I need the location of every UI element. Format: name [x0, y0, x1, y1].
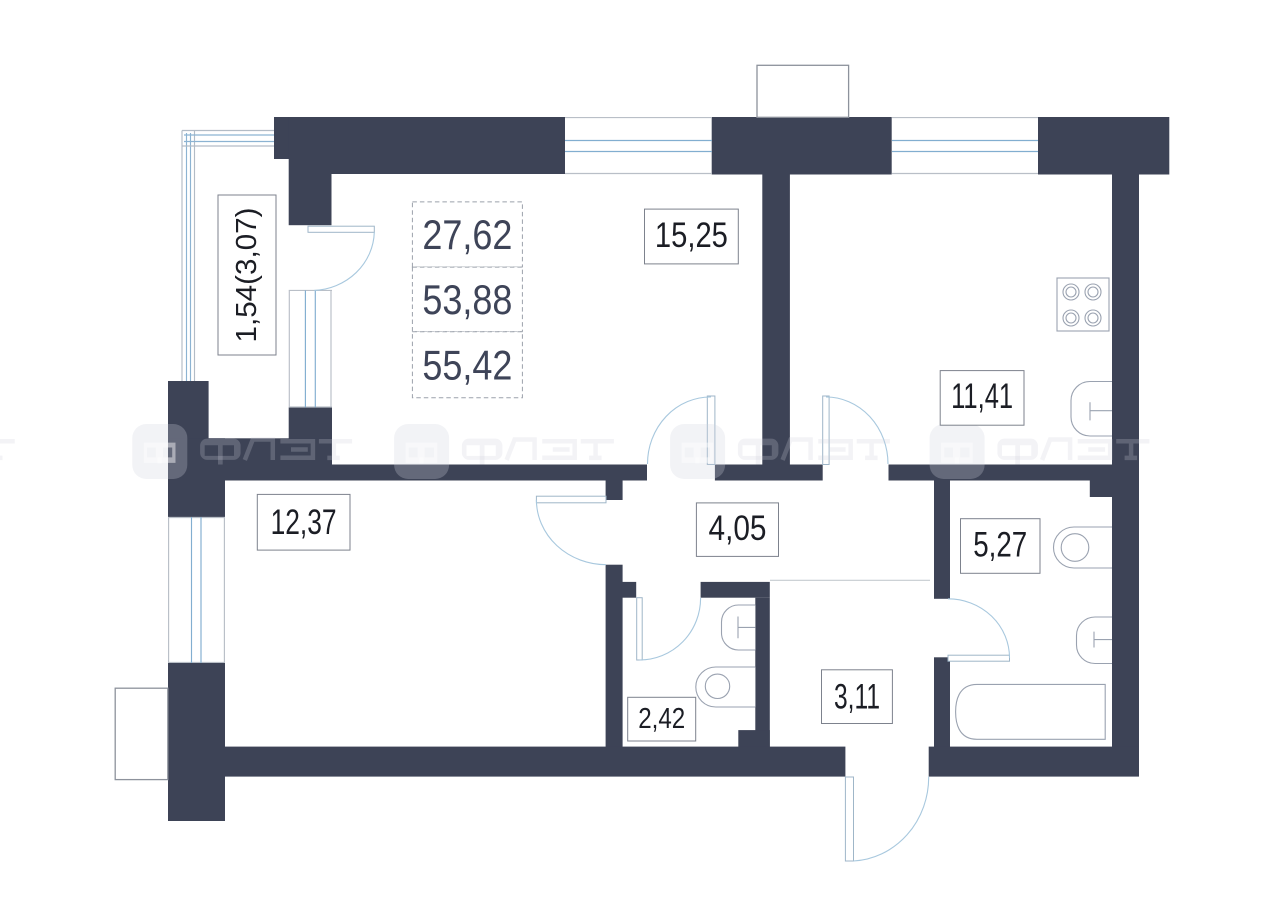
svg-text:15,25: 15,25	[655, 216, 728, 255]
svg-text:1,54(3,07): 1,54(3,07)	[231, 208, 263, 343]
svg-text:2,42: 2,42	[638, 703, 685, 735]
svg-text:12,37: 12,37	[271, 503, 337, 542]
svg-text:5,27: 5,27	[973, 526, 1027, 565]
svg-text:3,11: 3,11	[834, 678, 880, 717]
svg-text:55,42: 55,42	[422, 342, 512, 389]
svg-text:4,05: 4,05	[709, 509, 767, 548]
svg-text:27,62: 27,62	[422, 211, 512, 258]
svg-text:11,41: 11,41	[951, 377, 1013, 416]
svg-text:53,88: 53,88	[422, 276, 512, 323]
